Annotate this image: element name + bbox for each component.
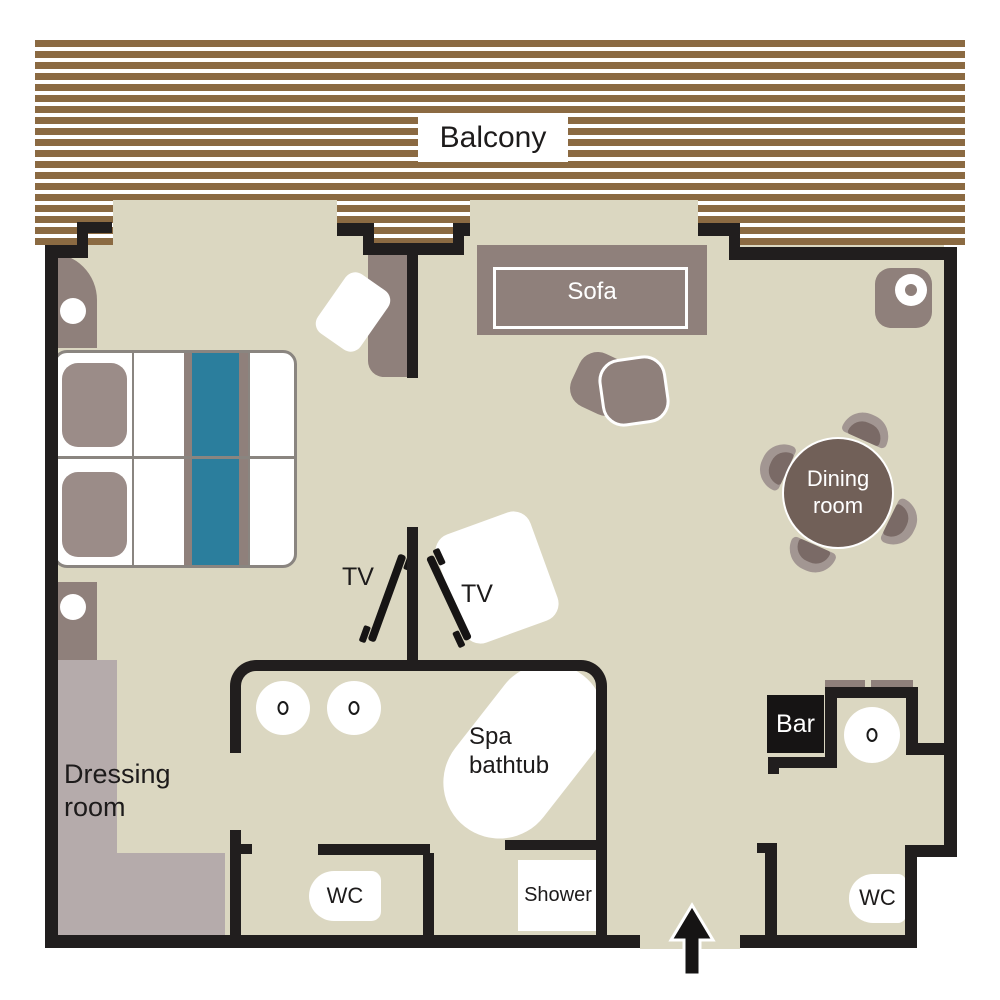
drain-icon (867, 728, 878, 742)
ottoman (596, 353, 673, 430)
balcony-deck (740, 40, 965, 245)
outer-wall-left (45, 245, 58, 947)
balcony-deck (35, 40, 113, 245)
entrance-arrow-icon (666, 902, 718, 978)
wardrobe (50, 853, 225, 935)
wall-top-right (729, 247, 957, 260)
pillow (62, 363, 127, 447)
guest-wc-label: WC (849, 874, 906, 923)
dining-room-label: Dining room (798, 455, 878, 531)
bar-wall (768, 757, 779, 774)
bathroom-door-gap (230, 753, 241, 830)
pillow (62, 472, 127, 557)
bed-center-divider (56, 456, 294, 459)
balcony-deck (113, 40, 337, 200)
bar-alcove-wall (906, 743, 957, 755)
bar-sink (844, 707, 900, 763)
floor-plan: Balcony Dressing room Sofa Dining room (0, 0, 1000, 1000)
divider-wall (407, 527, 418, 667)
bathroom-wall (230, 830, 241, 942)
balcony-door-frame (453, 223, 470, 236)
corner-mask (917, 857, 944, 943)
wall-top-left (77, 222, 112, 233)
sofa-label: Sofa (477, 262, 707, 322)
bar-alcove-wall (825, 687, 913, 698)
divider-wall (407, 255, 418, 378)
bed-runner (192, 353, 239, 565)
bed (53, 350, 297, 568)
bed-seam (132, 353, 134, 565)
bar-alcove-wall (906, 687, 918, 747)
balcony-label: Balcony (418, 115, 568, 162)
bar-label: Bar (767, 695, 824, 753)
lamp-icon (60, 594, 86, 620)
balcony-door-frame (363, 243, 464, 255)
wc-wall (241, 844, 252, 854)
armchair-dot (905, 284, 917, 296)
lamp-icon (60, 298, 86, 324)
tv-label-right: TV (461, 579, 501, 610)
bathroom-wall (230, 660, 607, 941)
wc-shower-wall (423, 853, 434, 941)
tv-label-left: TV (342, 562, 382, 593)
outer-wall-right (944, 250, 957, 857)
bed-runner-edge (184, 353, 192, 565)
shower-wall (505, 840, 605, 850)
guest-wc-wall (765, 843, 777, 938)
bed-seam (248, 353, 250, 565)
armchair (875, 268, 932, 328)
outer-wall-right-lower (905, 845, 917, 943)
balcony-deck (698, 40, 740, 223)
dressing-room-label: Dressing room (64, 758, 182, 830)
wc-wall (318, 844, 430, 855)
